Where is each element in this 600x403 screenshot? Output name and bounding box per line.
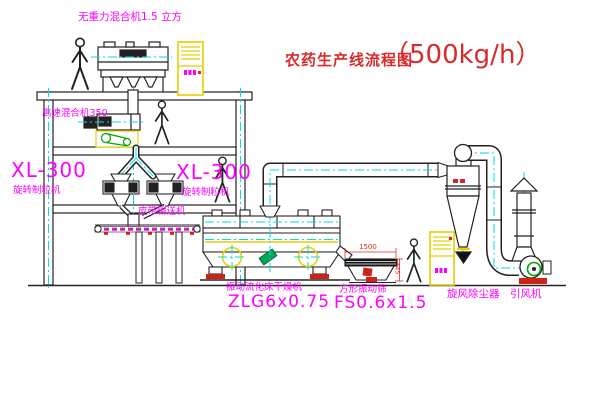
- label-cyclone: 旋风除尘器: [447, 289, 500, 300]
- process-flow-screenshot: 农药生产线流程图 （500kg/h） 无重力混合机1.5 立方 高速混合机350…: [0, 0, 600, 403]
- label-speed-mixer: 高速混合机350: [42, 109, 108, 119]
- label-fan: 引风机: [510, 289, 542, 300]
- fluid-bed-dryer-machine: [200, 210, 352, 280]
- draft-fan-machine: [519, 256, 551, 284]
- person-figure-top: [72, 38, 88, 89]
- label-xl300-right: XL-300: [176, 162, 252, 182]
- label-xl300-left: XL-300: [11, 160, 87, 180]
- person-figure-level2: [155, 101, 168, 144]
- label-belt-conveyor: 皮带输送机: [138, 207, 186, 217]
- label-granulator-right: 旋转制粒机: [182, 188, 230, 198]
- label-gravity-mixer: 无重力混合机1.5 立方: [78, 12, 182, 23]
- page-title-capacity: （500kg/h）: [383, 42, 541, 68]
- control-cabinet-right: [430, 232, 454, 285]
- control-cabinet-top: [178, 42, 203, 95]
- dimension-screen-width: 1500: [359, 244, 377, 251]
- dimension-screen-height: 345: [394, 262, 401, 274]
- label-granulator-left: 旋转制粒机: [13, 186, 61, 196]
- label-dryer-model: ZLG6x0.75: [228, 294, 330, 311]
- person-figure-ground: [407, 239, 420, 282]
- belt-conveyor-machine: [95, 225, 200, 283]
- label-screen-model: FS0.6x1.5: [334, 295, 427, 312]
